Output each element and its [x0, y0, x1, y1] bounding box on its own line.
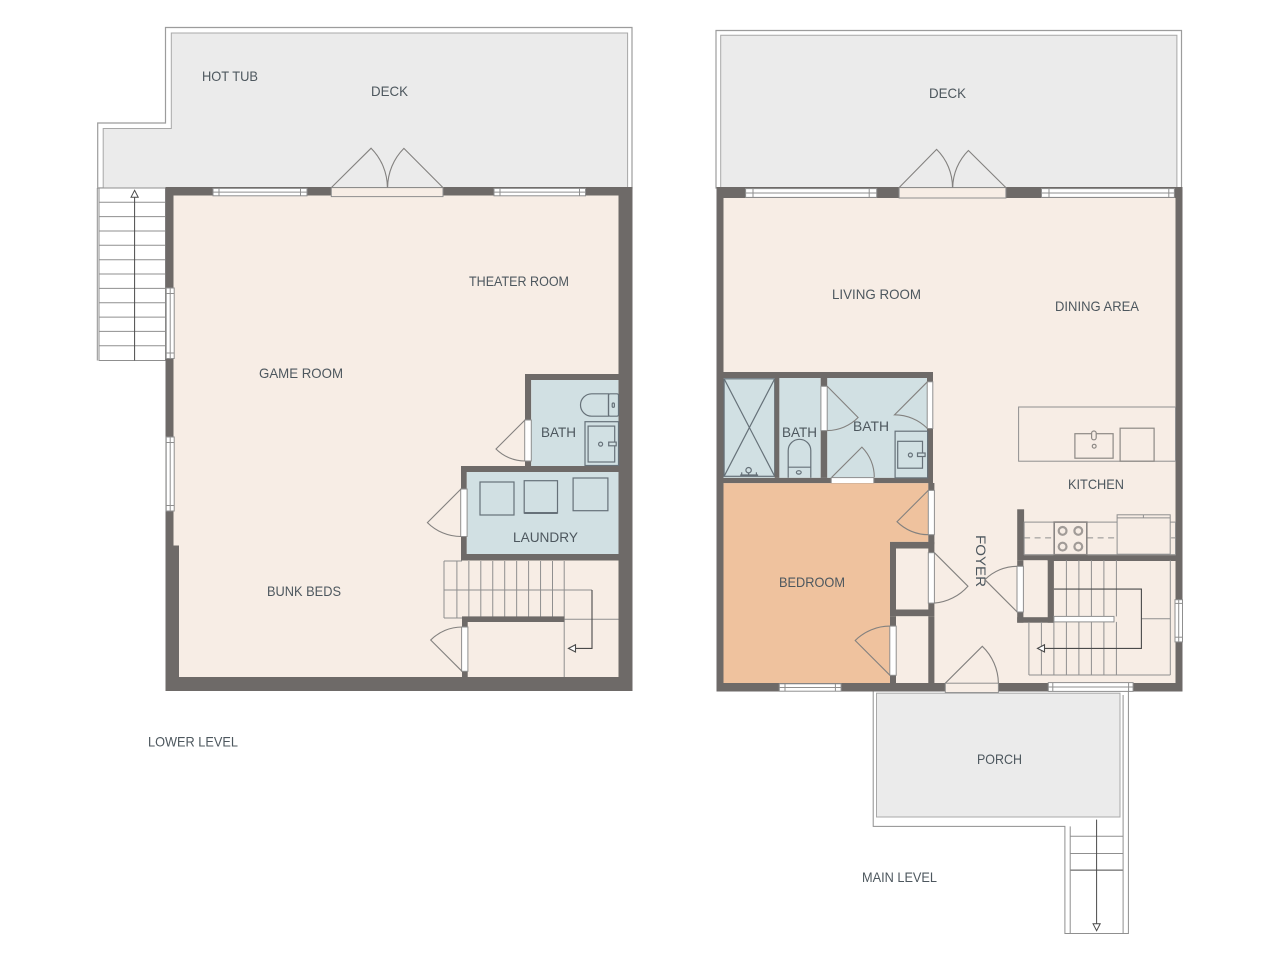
svg-text:BEDROOM: BEDROOM: [779, 575, 845, 590]
svg-text:DECK: DECK: [371, 84, 408, 99]
svg-text:LAUNDRY: LAUNDRY: [513, 530, 578, 545]
svg-text:LIVING ROOM: LIVING ROOM: [832, 287, 921, 302]
svg-text:MAIN LEVEL: MAIN LEVEL: [862, 870, 937, 885]
svg-text:KITCHEN: KITCHEN: [1068, 477, 1124, 492]
svg-text:BUNK BEDS: BUNK BEDS: [267, 584, 341, 599]
svg-text:GAME ROOM: GAME ROOM: [259, 366, 343, 381]
svg-text:LOWER LEVEL: LOWER LEVEL: [148, 735, 238, 750]
svg-text:HOT TUB: HOT TUB: [202, 69, 258, 84]
svg-text:DECK: DECK: [929, 86, 966, 101]
svg-text:BATH: BATH: [541, 425, 576, 440]
svg-text:PORCH: PORCH: [977, 752, 1022, 767]
svg-text:BATH: BATH: [853, 419, 889, 434]
svg-text:BATH: BATH: [782, 425, 817, 440]
svg-text:THEATER ROOM: THEATER ROOM: [469, 274, 569, 289]
svg-text:DINING AREA: DINING AREA: [1055, 299, 1140, 314]
